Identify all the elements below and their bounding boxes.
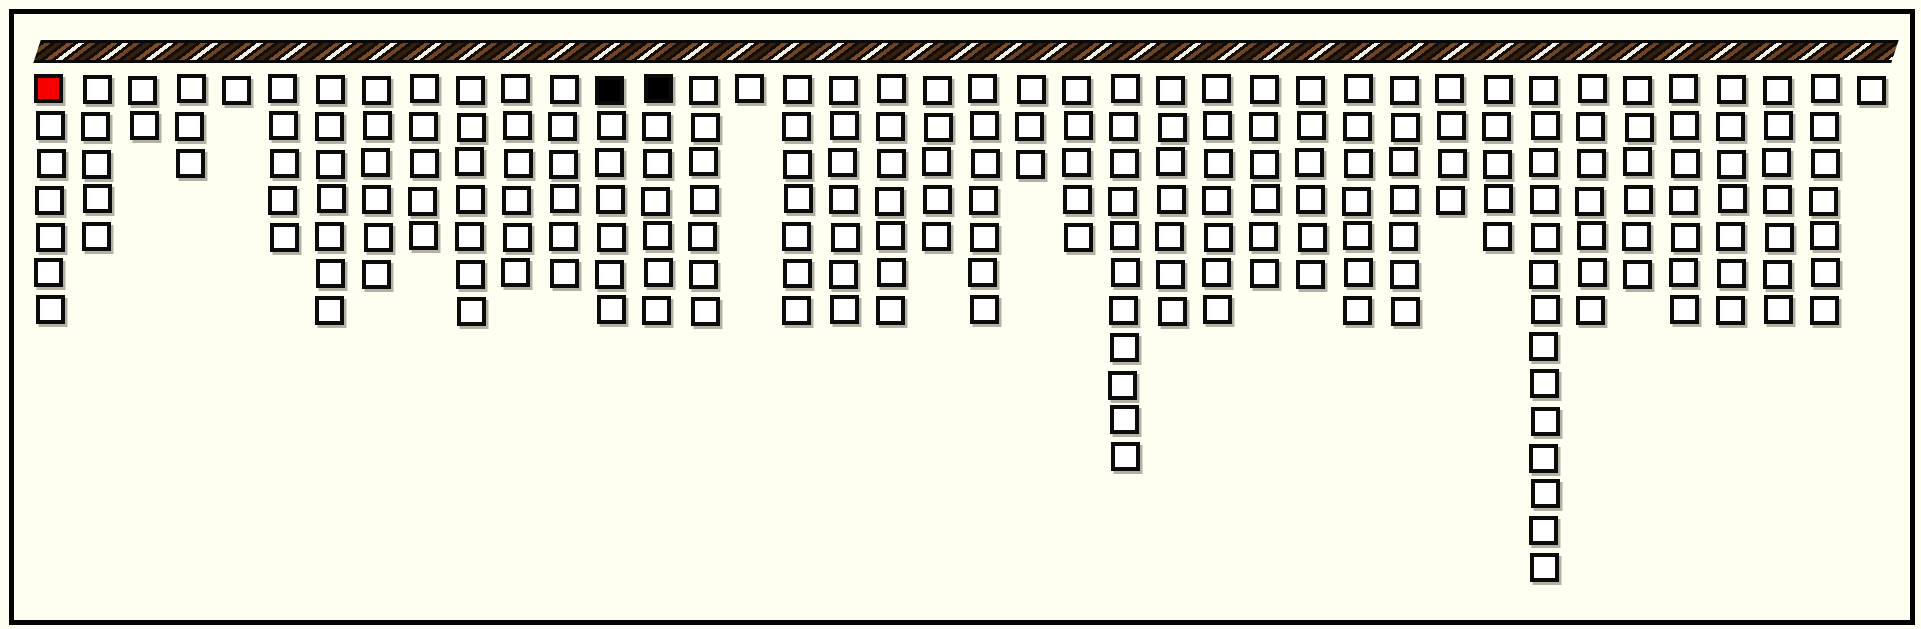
grid-square [549, 222, 578, 251]
grid-square [1810, 296, 1839, 325]
grid-square [1110, 405, 1139, 434]
grid-square [1482, 112, 1511, 141]
grid-square [782, 296, 811, 325]
grid-square [1811, 74, 1840, 103]
grid-square [1343, 221, 1372, 250]
grid-square [501, 258, 530, 287]
grid-square [1531, 223, 1560, 252]
grid-square [1344, 74, 1373, 103]
grid-square [1109, 112, 1138, 141]
grid-square [1763, 260, 1792, 289]
grid-square [876, 112, 905, 141]
grid-square [1064, 111, 1093, 140]
grid-square [1624, 185, 1653, 214]
grid-square [550, 184, 579, 213]
grid-square [1063, 185, 1092, 214]
grid-square [1529, 332, 1558, 361]
grid-square [1204, 149, 1233, 178]
grid-square [1111, 74, 1140, 103]
grid-square [1578, 74, 1607, 103]
grid-square [969, 186, 998, 215]
grid-square [783, 259, 812, 288]
grid-square [501, 74, 530, 103]
grid-square [1017, 75, 1046, 104]
grid-square [222, 76, 251, 105]
grid-square [1296, 76, 1325, 105]
grid-square [877, 258, 906, 287]
grid-square [1249, 222, 1278, 251]
grid-square [689, 76, 718, 105]
grid-square [128, 76, 157, 105]
grid-square [82, 150, 111, 179]
grid-square [1156, 147, 1185, 176]
grid-square [1531, 479, 1560, 508]
grid-square [642, 112, 671, 141]
grid-square [1344, 149, 1373, 178]
grid-square [1716, 222, 1745, 251]
grid-square [1765, 223, 1794, 252]
grid-square [783, 75, 812, 104]
grid-square [596, 185, 625, 214]
grid-square [1158, 113, 1187, 142]
grid-square [1343, 296, 1372, 325]
grid-square [362, 260, 391, 289]
grid-square [782, 112, 811, 141]
grid-square [691, 297, 720, 326]
grid-square [1062, 76, 1091, 105]
grid-square [363, 111, 392, 140]
grid-square [1531, 295, 1560, 324]
grid-square [83, 75, 112, 104]
grid-square [457, 297, 486, 326]
grid-square [362, 76, 391, 105]
grid-square [1810, 112, 1839, 141]
grid-square [595, 148, 624, 177]
grid-square [1529, 516, 1558, 545]
grid-square [1762, 148, 1791, 177]
grid-square [457, 113, 486, 142]
grid-square [1062, 148, 1091, 177]
grid-square [35, 186, 64, 215]
grid-square [1157, 185, 1186, 214]
grid-square [1763, 76, 1792, 105]
grid-square [316, 150, 345, 179]
grid-square [1250, 150, 1279, 179]
grid-square [1529, 76, 1558, 105]
grid-square [548, 112, 577, 141]
grid-square [1671, 223, 1700, 252]
grid-square [831, 223, 860, 252]
grid-square [34, 258, 63, 287]
grid-square [1015, 112, 1044, 141]
grid-square [315, 112, 344, 141]
grid-square [455, 147, 484, 176]
grid-square [269, 111, 298, 140]
grid-square [317, 184, 346, 213]
grid-square [1436, 186, 1465, 215]
grid-square [1857, 76, 1886, 105]
grid-square [1576, 296, 1605, 325]
grid-square [1811, 149, 1840, 178]
grid-square [1108, 371, 1137, 400]
grid-square [923, 185, 952, 214]
grid-square [1577, 149, 1606, 178]
black-square [644, 74, 673, 103]
grid-square [1438, 149, 1467, 178]
grid-square [1389, 222, 1418, 251]
grid-square [1764, 295, 1793, 324]
grid-square [455, 222, 484, 251]
grid-square [1298, 223, 1327, 252]
red-square [34, 74, 63, 103]
grid-square [1623, 147, 1652, 176]
grid-square [691, 113, 720, 142]
grid-square [268, 186, 297, 215]
grid-square [830, 111, 859, 140]
grid-square [641, 187, 670, 216]
grid-square [1203, 111, 1232, 140]
grid-square [922, 147, 951, 176]
grid-square [970, 295, 999, 324]
grid-square [877, 74, 906, 103]
grid-square [83, 184, 112, 213]
grid-square [1110, 221, 1139, 250]
grid-square [1669, 258, 1698, 287]
grid-square [504, 149, 533, 178]
grid-square [1623, 76, 1652, 105]
grid-square [1203, 295, 1232, 324]
grid-square [1437, 111, 1466, 140]
grid-square [1669, 186, 1698, 215]
grid-square [1530, 185, 1559, 214]
grid-square [875, 187, 904, 216]
grid-square [1716, 296, 1745, 325]
grid-square [36, 223, 65, 252]
grid-square [1064, 223, 1093, 252]
grid-square [923, 76, 952, 105]
grid-square [1251, 184, 1280, 213]
grid-square [1530, 369, 1559, 398]
grid-square [968, 258, 997, 287]
grid-square [1669, 74, 1698, 103]
grid-square [175, 112, 204, 141]
grid-square [597, 223, 626, 252]
grid-square [315, 222, 344, 251]
grid-square [1529, 148, 1558, 177]
grid-square [316, 259, 345, 288]
grid-square [409, 221, 438, 250]
grid-square [1716, 112, 1745, 141]
grid-square [362, 185, 391, 214]
grid-square [1809, 187, 1838, 216]
grid-square [644, 258, 673, 287]
grid-square [1111, 258, 1140, 287]
grid-square [689, 260, 718, 289]
grid-square [643, 149, 672, 178]
grid-square [688, 222, 717, 251]
grid-square [1671, 149, 1700, 178]
grid-square [597, 111, 626, 140]
grid-square [81, 112, 110, 141]
grid-square [1249, 112, 1278, 141]
grid-square [1763, 185, 1792, 214]
grid-square [550, 75, 579, 104]
grid-square [1483, 222, 1512, 251]
grid-square [970, 223, 999, 252]
grid-square [1250, 75, 1279, 104]
grid-square [1297, 111, 1326, 140]
grid-square [268, 74, 297, 103]
grid-square [1016, 150, 1045, 179]
grid-square [270, 149, 299, 178]
grid-square [1390, 185, 1419, 214]
grid-square [37, 149, 66, 178]
grid-square [829, 76, 858, 105]
grid-square [456, 260, 485, 289]
grid-square [1484, 184, 1513, 213]
grid-square [876, 221, 905, 250]
grid-square [784, 184, 813, 213]
grid-square [408, 187, 437, 216]
grid-square [1483, 150, 1512, 179]
grid-square [1764, 111, 1793, 140]
grid-square [456, 185, 485, 214]
grid-square [130, 111, 159, 140]
grid-square [1110, 333, 1139, 362]
grid-square [503, 223, 532, 252]
grid-square [828, 148, 857, 177]
grid-square [1296, 185, 1325, 214]
grid-square [1576, 112, 1605, 141]
grid-square [1391, 297, 1420, 326]
grid-square [1529, 260, 1558, 289]
grid-square [1622, 222, 1651, 251]
grid-square [689, 147, 718, 176]
grid-square [735, 74, 764, 103]
grid-square [690, 185, 719, 214]
grid-square [1343, 112, 1372, 141]
grid-square [971, 149, 1000, 178]
grid-square [922, 222, 951, 251]
grid-square [36, 295, 65, 324]
grid-square [1717, 150, 1746, 179]
grid-square [1578, 258, 1607, 287]
grid-square [829, 260, 858, 289]
grid-square [783, 150, 812, 179]
grid-square [456, 76, 485, 105]
grid-square [830, 295, 859, 324]
grid-square [1390, 260, 1419, 289]
grid-square [1529, 444, 1558, 473]
grid-square [1625, 113, 1654, 142]
grid-square [409, 112, 438, 141]
grid-square [1623, 260, 1652, 289]
grid-square [1435, 74, 1464, 103]
grid-square [970, 111, 999, 140]
black-square [595, 76, 624, 105]
grid-square [1484, 75, 1513, 104]
grid-square [410, 149, 439, 178]
grid-square [1156, 76, 1185, 105]
grid-square [1342, 187, 1371, 216]
grid-square [1295, 148, 1324, 177]
hanging-squares-chart [0, 0, 1921, 629]
grid-square [1296, 260, 1325, 289]
grid-square [1110, 149, 1139, 178]
grid-square [924, 113, 953, 142]
grid-square [1811, 258, 1840, 287]
grid-square [503, 111, 532, 140]
grid-square [876, 296, 905, 325]
grid-square [410, 74, 439, 103]
grid-square [549, 150, 578, 179]
grid-square [316, 75, 345, 104]
grid-square [642, 296, 671, 325]
grid-square [1344, 258, 1373, 287]
grid-square [1577, 221, 1606, 250]
grid-square [36, 111, 65, 140]
grid-square [177, 74, 206, 103]
grid-square [1109, 296, 1138, 325]
grid-square [502, 186, 531, 215]
grid-square [1530, 553, 1559, 582]
grid-square [1717, 75, 1746, 104]
grid-square [1717, 259, 1746, 288]
grid-square [597, 295, 626, 324]
grid-square [643, 221, 672, 250]
grid-square [1531, 407, 1560, 436]
grid-square [1108, 187, 1137, 216]
grid-square [1390, 76, 1419, 105]
grid-square [550, 259, 579, 288]
grid-square [1718, 184, 1747, 213]
grid-square [1389, 147, 1418, 176]
grid-square [782, 222, 811, 251]
grid-square [1670, 295, 1699, 324]
grid-square [364, 223, 393, 252]
grid-square [361, 148, 390, 177]
grid-square [1531, 111, 1560, 140]
grid-square [315, 296, 344, 325]
grid-square [1155, 222, 1184, 251]
rope-bar [33, 40, 1898, 63]
grid-square [1810, 221, 1839, 250]
grid-square [1202, 186, 1231, 215]
grid-square [82, 222, 111, 251]
grid-square [270, 223, 299, 252]
grid-square [829, 185, 858, 214]
grid-square [1111, 442, 1140, 471]
grid-square [1202, 74, 1231, 103]
grid-square [1250, 259, 1279, 288]
grid-square [595, 260, 624, 289]
grid-square [1670, 111, 1699, 140]
grid-square [1158, 297, 1187, 326]
grid-square [877, 149, 906, 178]
grid-square [1204, 223, 1233, 252]
grid-square [1202, 258, 1231, 287]
grid-square [968, 74, 997, 103]
grid-square [1156, 260, 1185, 289]
grid-square [1391, 113, 1420, 142]
grid-square [1575, 187, 1604, 216]
grid-square [176, 149, 205, 178]
